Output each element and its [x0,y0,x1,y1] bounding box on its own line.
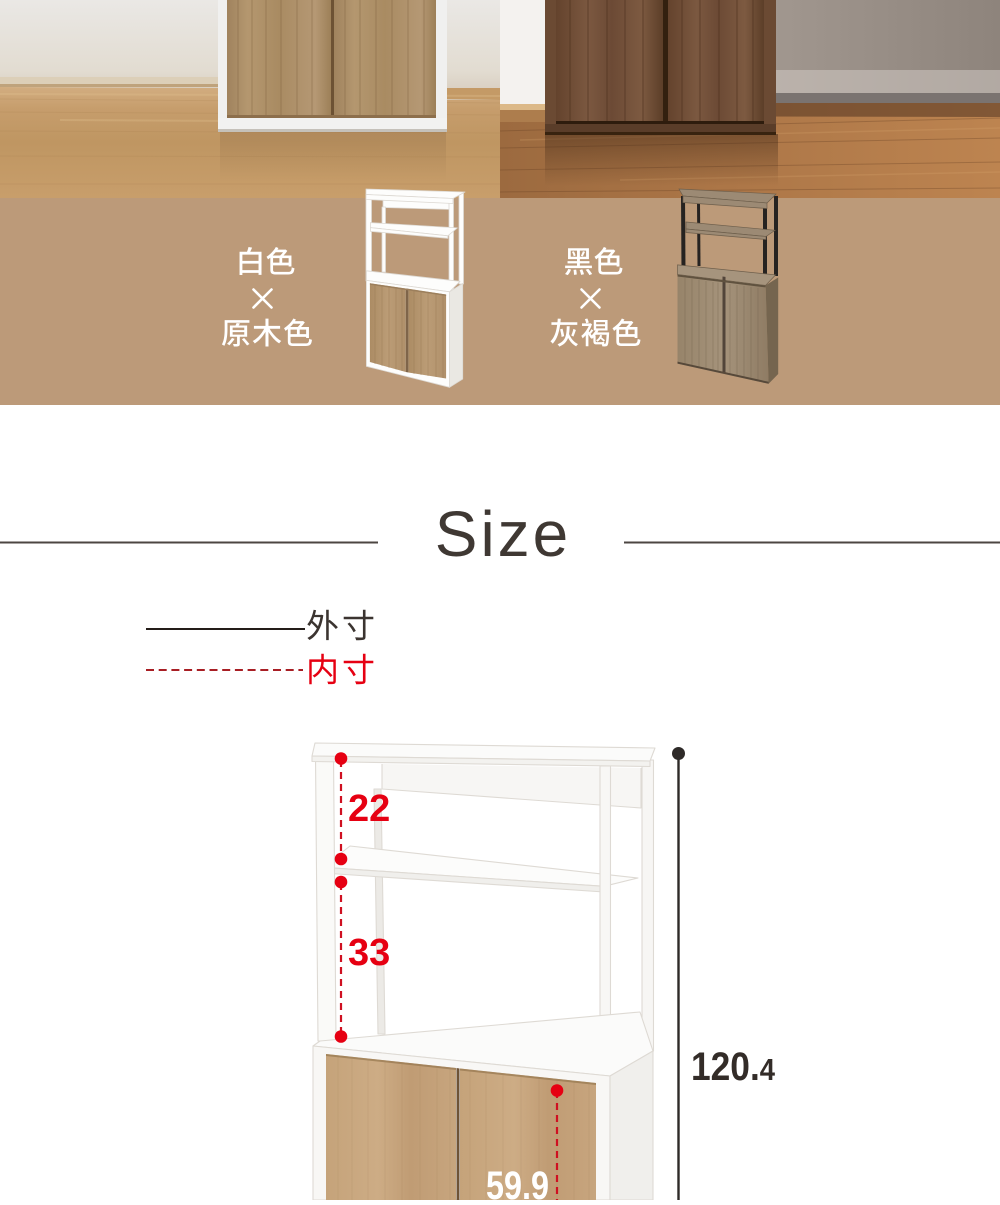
svg-text:59.9: 59.9 [486,1164,549,1200]
svg-text:33: 33 [348,932,390,974]
svg-text:Size: Size [435,498,572,570]
svg-text:120.4: 120.4 [691,1045,776,1089]
svg-text:22: 22 [348,788,390,830]
